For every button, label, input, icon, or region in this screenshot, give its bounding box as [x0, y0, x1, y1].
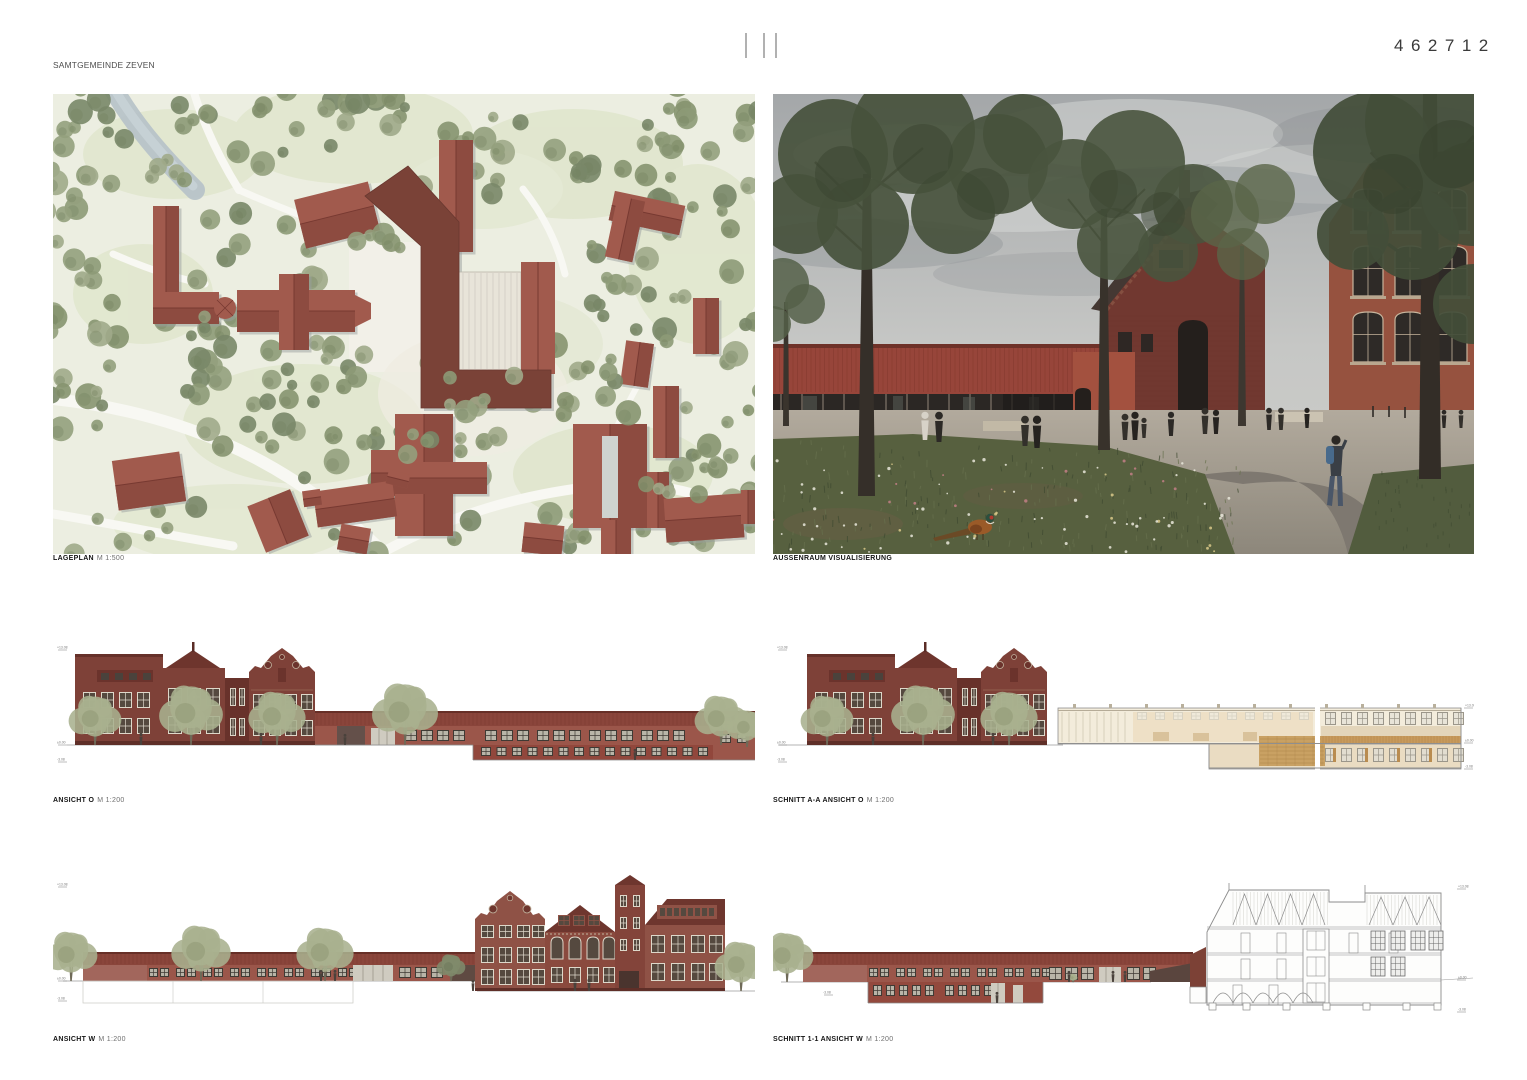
section-11-caption: SCHNITT 1-1 ANSICHT WM 1:200 [773, 1036, 893, 1043]
svg-text:+13.08: +13.08 [1458, 885, 1469, 889]
section-11-drawing: -3.08+13.08±0.00-3.08 [773, 875, 1474, 1040]
header-line-1: SAMTGEMEINDE ZEVEN [53, 60, 340, 71]
registration-mark [745, 33, 747, 58]
caption-scale: M 1:200 [98, 1036, 125, 1043]
glass-courtyard [459, 272, 521, 370]
svg-text:±0.00: ±0.00 [57, 977, 66, 981]
caption-title: ANSICHT W [53, 1036, 95, 1043]
svg-text:-3.08: -3.08 [1458, 1008, 1466, 1012]
caption-scale: M 1:200 [97, 797, 124, 804]
svg-text:-3.08: -3.08 [57, 758, 65, 762]
site-plan-drawing [53, 94, 755, 554]
elevation-east-drawing: +13.08±0.00-3.08 [53, 640, 755, 800]
caption-title: AUSSENRAUM VISUALISIERUNG [773, 555, 892, 562]
elevation-east-caption: ANSICHT OM 1:200 [53, 797, 125, 804]
section-aa-panel: +13.08±0.00-3.08+13.08±0.00-3.08 [773, 640, 1474, 800]
registration-mark [763, 33, 765, 58]
site-plan-panel [53, 94, 755, 554]
section-aa-drawing: +13.08±0.00-3.08+13.08±0.00-3.08 [773, 640, 1474, 800]
visualization-panel [773, 94, 1474, 554]
visualization-caption: AUSSENRAUM VISUALISIERUNG [773, 555, 895, 562]
svg-text:+13.08: +13.08 [57, 646, 68, 650]
svg-text:-3.08: -3.08 [57, 997, 65, 1001]
school-elevation-west [475, 875, 725, 991]
annex-elevation-west [83, 952, 479, 1003]
caption-scale: M 1:500 [97, 555, 124, 562]
svg-text:±0.00: ±0.00 [57, 741, 66, 745]
svg-text:±0.00: ±0.00 [777, 741, 786, 745]
caption-scale: M 1:200 [867, 797, 894, 804]
section-aa-caption: SCHNITT A-A ANSICHT OM 1:200 [773, 797, 894, 804]
svg-text:-3.08: -3.08 [823, 991, 831, 995]
elevation-west-caption: ANSICHT WM 1:200 [53, 1036, 126, 1043]
competition-board: SAMTGEMEINDE ZEVEN HOCHBAULICHER REALISI… [0, 0, 1527, 1080]
section-11-panel: -3.08+13.08±0.00-3.08 [773, 875, 1474, 1040]
svg-text:±0.00: ±0.00 [1465, 739, 1474, 743]
caption-scale: M 1:200 [866, 1036, 893, 1043]
entry-code: 462712 [1394, 36, 1496, 56]
svg-text:±0.00: ±0.00 [1458, 976, 1467, 980]
exterior-rendering [773, 94, 1474, 554]
elevation-west-panel: +13.08±0.00-3.08 [53, 875, 755, 1040]
site-plan-caption: LAGEPLANM 1:500 [53, 555, 124, 562]
elevation-east-panel: +13.08±0.00-3.08 [53, 640, 755, 800]
elevation-west-drawing: +13.08±0.00-3.08 [53, 875, 755, 1040]
caption-title: SCHNITT A-A ANSICHT O [773, 797, 864, 804]
svg-text:+13.08: +13.08 [57, 883, 68, 887]
registration-mark [775, 33, 777, 58]
svg-text:-3.08: -3.08 [1465, 765, 1473, 769]
school-line-section [1190, 883, 1473, 1010]
caption-title: ANSICHT O [53, 797, 94, 804]
svg-text:+13.08: +13.08 [777, 646, 788, 650]
caption-title: SCHNITT 1-1 ANSICHT W [773, 1036, 863, 1043]
svg-text:+13.08: +13.08 [1465, 704, 1474, 708]
svg-text:-3.08: -3.08 [777, 758, 785, 762]
caption-title: LAGEPLAN [53, 555, 94, 562]
annex-section [1058, 704, 1464, 770]
